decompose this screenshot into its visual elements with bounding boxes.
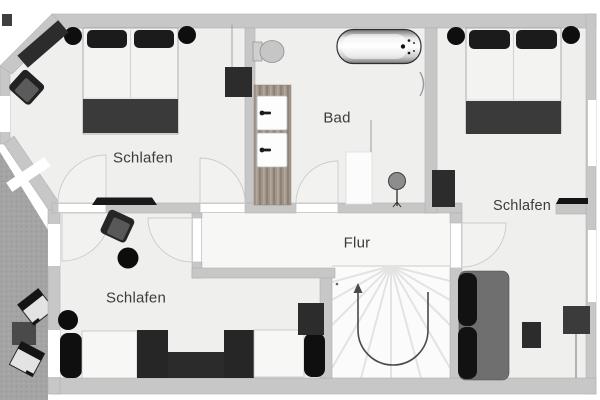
door-leaf	[296, 204, 338, 213]
toilet	[253, 41, 284, 63]
wardrobe	[225, 67, 252, 97]
bathtub	[337, 30, 421, 64]
window	[588, 100, 596, 166]
sofa-cushion	[458, 273, 477, 326]
wall-hallway-bottom	[192, 268, 335, 278]
pillar	[2, 14, 12, 26]
wall-stub-right	[556, 203, 586, 214]
daybed	[254, 330, 304, 377]
sofa	[458, 271, 509, 380]
hallway-floor	[202, 213, 450, 268]
desk	[563, 306, 590, 334]
round-nightstand	[447, 27, 465, 45]
round-nightstand	[64, 27, 82, 45]
room-label-bedroom-bottom-left: Schlafen	[106, 290, 166, 307]
daybed-cushion	[137, 330, 168, 378]
door-leaf	[451, 223, 462, 268]
stair-marker-dot	[336, 283, 339, 286]
sofa-cushion	[458, 327, 477, 379]
room-label-bedroom-top-left: Schlafen	[113, 150, 173, 167]
shower-tray	[346, 152, 372, 204]
daybed	[82, 331, 137, 378]
faucet-icon	[262, 149, 271, 152]
daybed-cushion	[224, 330, 254, 378]
tv-board	[92, 198, 157, 206]
bolster-cushion	[304, 333, 325, 377]
door-leaf	[193, 218, 202, 262]
round-nightstand	[562, 26, 580, 44]
wall-bottom	[52, 378, 596, 394]
pillow	[134, 30, 174, 48]
side-table	[522, 322, 541, 348]
blanket	[466, 101, 561, 134]
bolster-cushion	[60, 333, 82, 378]
door-leaf	[200, 204, 245, 213]
room-label-bedroom-right: Schlafen	[493, 198, 551, 214]
wardrobe	[432, 170, 455, 207]
round-side-table	[118, 248, 139, 269]
faucet-icon	[262, 112, 271, 115]
window	[48, 224, 60, 266]
wall-shelf	[556, 198, 588, 204]
pillow	[87, 30, 127, 48]
blanket	[83, 99, 178, 133]
chest	[298, 303, 324, 335]
room-label-bathroom: Bad	[323, 110, 350, 127]
pillow	[516, 30, 557, 49]
double-vanity	[254, 85, 291, 205]
round-side-table	[58, 310, 78, 330]
round-nightstand	[178, 26, 196, 44]
window	[0, 96, 10, 132]
floor-plan: Schlafen Bad Schlafen Flur Schlafen	[0, 0, 600, 400]
window	[48, 330, 60, 377]
room-label-hallway: Flur	[344, 235, 371, 252]
faucet-icon	[401, 44, 405, 48]
wall-top	[52, 14, 596, 28]
pillow	[469, 30, 510, 49]
patio-table	[12, 322, 36, 345]
window	[588, 230, 596, 302]
low-table	[168, 352, 224, 378]
